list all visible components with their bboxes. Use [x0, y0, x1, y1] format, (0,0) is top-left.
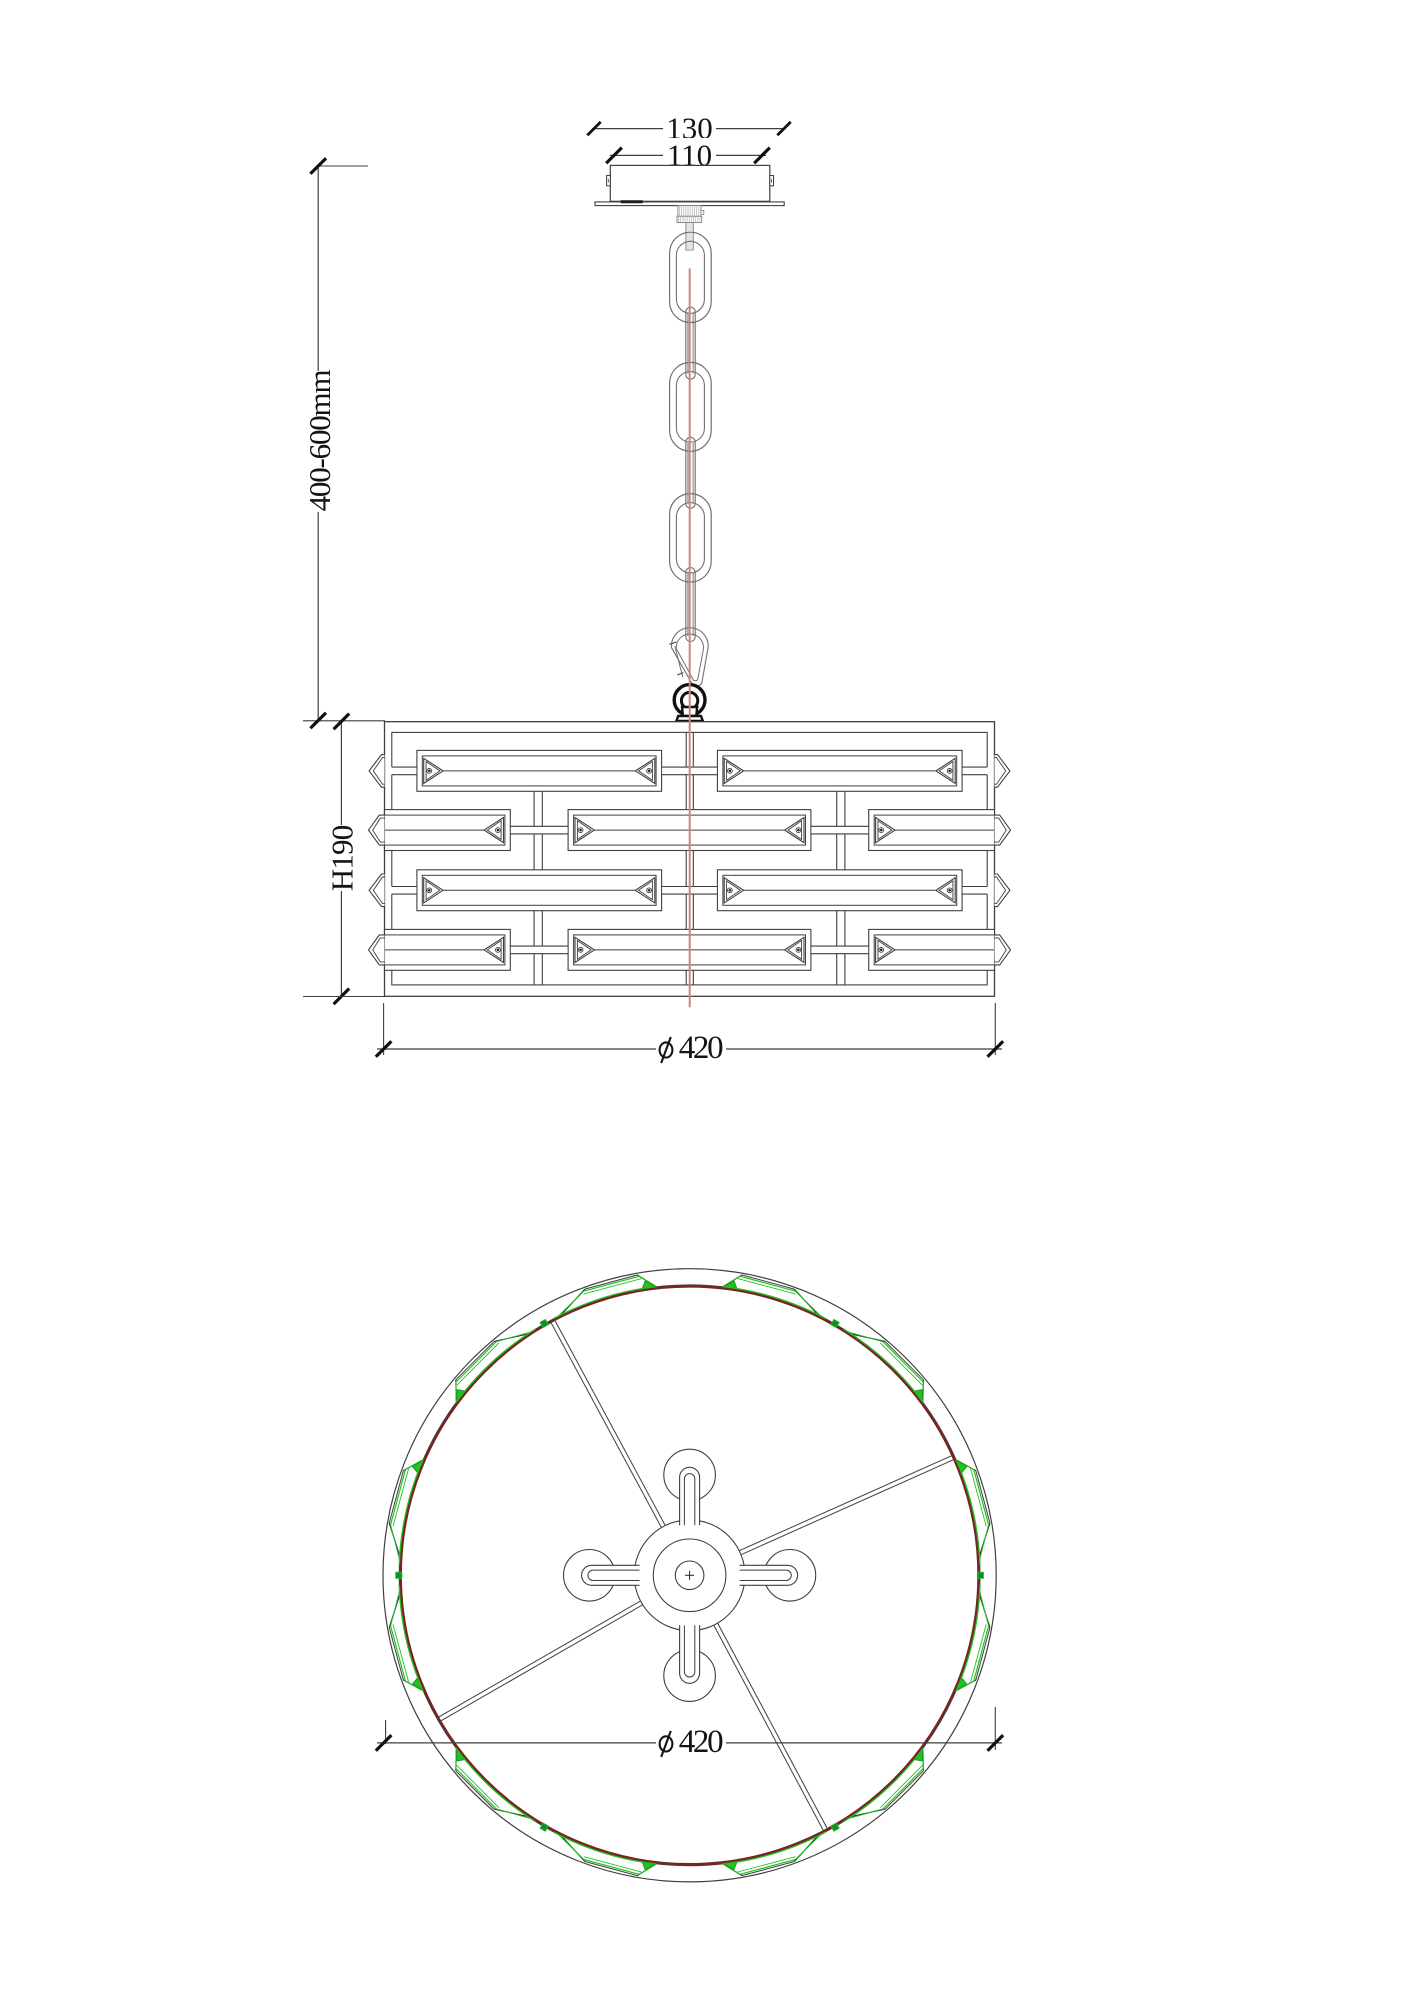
- svg-text:H190: H190: [325, 825, 360, 891]
- svg-text:420: 420: [679, 1030, 723, 1066]
- svg-text:400-600mm: 400-600mm: [302, 370, 337, 512]
- svg-text:420: 420: [679, 1724, 723, 1760]
